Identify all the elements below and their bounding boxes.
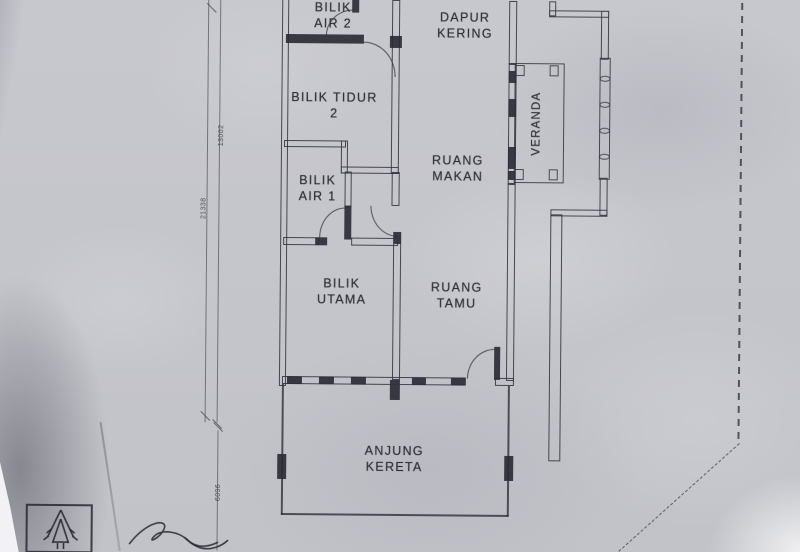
wall-bilik-utama-top [283, 237, 319, 245]
window-segment [412, 377, 426, 385]
room-label-line: ANJUNG [334, 442, 454, 459]
window-segment [319, 376, 334, 384]
dimension-line [217, 0, 222, 422]
room-label-line: TAMU [397, 295, 517, 312]
boundary-dashed-line [737, 3, 742, 445]
room-label-line: UTAMA [282, 291, 402, 308]
wall-bilik-tidur-2-bottom [284, 140, 346, 148]
paper-highlight-bottom-right [680, 442, 800, 552]
dimension-label: 13002 [218, 115, 228, 155]
room-label-line: DAPUR [405, 9, 525, 26]
window-segment [351, 377, 366, 385]
room-label-line: 2 [274, 105, 394, 122]
dimension-label: 6096 [215, 472, 225, 512]
tree-icon [39, 507, 81, 549]
railing-post [599, 128, 610, 134]
wall-bilik-utama-top [351, 238, 398, 246]
door-arc-bilik-air-1 [319, 207, 345, 237]
door-jamb [315, 237, 327, 245]
room-label-line: BILIK [258, 172, 378, 189]
porch-column [277, 454, 286, 479]
column-base [549, 169, 558, 180]
room-label-line: AIR 1 [257, 188, 377, 205]
room-label-ruang-tamu: RUANG TAMU [397, 279, 517, 312]
room-label-line: BILIK [273, 0, 393, 16]
wall-side-path [548, 214, 562, 461]
room-label-line: RUANG [398, 152, 518, 169]
room-label-bilik-tidur-2: BILIK TIDUR 2 [274, 89, 394, 122]
railing-post [600, 76, 611, 82]
room-label-anjung-kereta: ANJUNG KERETA [334, 442, 454, 475]
door-jamb [390, 36, 402, 48]
paper-crease [100, 422, 121, 551]
room-label-ruang-makan: RUANG MAKAN [398, 152, 518, 185]
room-label-dapur-kering: DAPUR KERING [405, 9, 525, 42]
room-label-bilik-air-1: BILIK AIR 1 [257, 172, 377, 205]
wall-bottom-exterior [282, 376, 466, 386]
room-label-bilik-utama: BILIK UTAMA [282, 275, 402, 308]
wall-rear-bay [601, 11, 609, 60]
room-label-line: KERING [405, 25, 525, 42]
railing-post [599, 154, 610, 160]
porch-edge-left [281, 384, 284, 515]
porch-edge-right [507, 386, 510, 517]
column-base [516, 65, 525, 76]
floor-plan-photo: 13002 21338 6096 [0, 0, 800, 552]
dimension-label: 21338 [200, 188, 210, 228]
room-label-line: AIR 2 [273, 15, 393, 32]
door-arc-front [467, 349, 495, 379]
room-label-line: RUANG [397, 279, 517, 296]
room-label-line: BILIK TIDUR [274, 89, 394, 106]
signature [125, 516, 229, 551]
column-base [550, 65, 559, 76]
window-segment [287, 376, 302, 384]
room-label-veranda: VERANDA [530, 74, 544, 174]
railing-post [599, 102, 610, 108]
room-label-line: MAKAN [398, 168, 518, 185]
room-label-line: BILIK [282, 275, 402, 292]
porch-edge-bottom [281, 513, 509, 517]
porch-column [504, 456, 513, 481]
room-label-line: KERETA [334, 458, 454, 475]
room-label-bilik-air-2: BILIK AIR 2 [273, 0, 393, 32]
window-segment [451, 377, 465, 385]
